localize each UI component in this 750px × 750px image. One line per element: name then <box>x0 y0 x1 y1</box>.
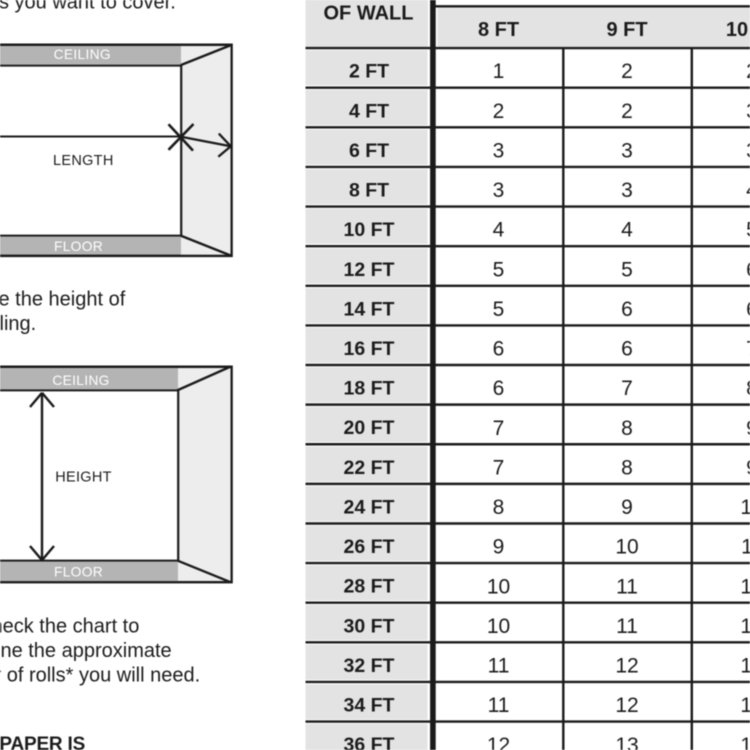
svg-text:11: 11 <box>741 536 750 559</box>
svg-text:2: 2 <box>621 100 633 123</box>
svg-text:10: 10 <box>740 496 750 519</box>
svg-text:5: 5 <box>493 258 505 281</box>
svg-text:12: 12 <box>615 655 638 678</box>
svg-text:24 FT: 24 FT <box>344 497 395 519</box>
svg-text:OF WALL: OF WALL <box>324 3 414 25</box>
svg-text:8: 8 <box>621 417 633 440</box>
svg-text:12: 12 <box>487 734 510 750</box>
svg-text:4 FT: 4 FT <box>349 100 389 122</box>
svg-text:13: 13 <box>740 655 750 678</box>
svg-text:13: 13 <box>615 734 638 750</box>
svg-text:11: 11 <box>488 694 510 717</box>
svg-text:9 FT: 9 FT <box>606 19 647 41</box>
svg-text:FLOOR: FLOOR <box>54 239 103 254</box>
svg-text:3: 3 <box>493 179 505 202</box>
svg-text:s you want to cover.: s you want to cover. <box>0 0 176 14</box>
svg-text:HEIGHT: HEIGHT <box>55 470 112 486</box>
svg-text:9: 9 <box>746 456 750 479</box>
svg-text:CEILING: CEILING <box>52 373 109 388</box>
svg-text:4: 4 <box>746 179 750 202</box>
svg-text:10: 10 <box>615 536 638 559</box>
svg-text:8 FT: 8 FT <box>349 180 389 202</box>
svg-text:FLOOR: FLOOR <box>54 564 103 579</box>
svg-text:6: 6 <box>746 258 750 281</box>
svg-text:10: 10 <box>487 615 510 638</box>
svg-text:6: 6 <box>493 377 505 400</box>
svg-text:3: 3 <box>746 100 750 123</box>
svg-text:11: 11 <box>616 615 638 638</box>
svg-text:36 FT: 36 FT <box>344 734 395 750</box>
svg-text:34 FT: 34 FT <box>344 695 395 717</box>
svg-text:6: 6 <box>621 338 633 361</box>
svg-text:3: 3 <box>621 179 633 202</box>
svg-text:6 FT: 6 FT <box>349 140 389 162</box>
svg-text:CEILING: CEILING <box>54 47 111 62</box>
svg-text:12: 12 <box>740 575 750 598</box>
svg-text:15: 15 <box>740 734 750 750</box>
svg-text:7: 7 <box>746 338 750 361</box>
svg-text:14: 14 <box>740 694 750 717</box>
svg-text:22 FT: 22 FT <box>344 457 395 479</box>
svg-text:7: 7 <box>493 456 505 479</box>
svg-text:20 FT: 20 FT <box>344 417 395 439</box>
svg-text:r of rolls* you will need.: r of rolls* you will need. <box>0 665 200 687</box>
svg-text:e the height of: e the height of <box>0 289 126 311</box>
svg-text:LPAPER IS: LPAPER IS <box>0 734 85 750</box>
svg-text:26 FT: 26 FT <box>344 536 395 558</box>
svg-text:6: 6 <box>621 298 633 321</box>
svg-text:11: 11 <box>488 655 510 678</box>
svg-text:18 FT: 18 FT <box>344 378 395 400</box>
svg-text:2: 2 <box>746 60 750 83</box>
svg-text:32 FT: 32 FT <box>344 655 395 677</box>
svg-text:2 FT: 2 FT <box>349 61 389 83</box>
svg-text:6: 6 <box>493 338 505 361</box>
svg-text:16 FT: 16 FT <box>344 338 395 360</box>
svg-text:5: 5 <box>493 298 505 321</box>
svg-text:8: 8 <box>493 496 505 519</box>
svg-text:4: 4 <box>621 219 633 242</box>
svg-text:heck the chart to: heck the chart to <box>0 616 139 638</box>
svg-text:30 FT: 30 FT <box>344 615 395 637</box>
svg-text:7: 7 <box>621 377 633 400</box>
svg-text:8: 8 <box>746 377 750 400</box>
svg-text:12: 12 <box>615 694 638 717</box>
svg-text:3: 3 <box>746 140 750 163</box>
svg-text:9: 9 <box>621 496 633 519</box>
svg-text:ine the approximate: ine the approximate <box>0 640 172 662</box>
svg-text:12 FT: 12 FT <box>344 259 395 281</box>
svg-text:10: 10 <box>487 575 510 598</box>
svg-text:5: 5 <box>621 258 633 281</box>
svg-text:12: 12 <box>740 615 750 638</box>
svg-text:1: 1 <box>493 60 505 83</box>
svg-text:6: 6 <box>746 298 750 321</box>
svg-text:14 FT: 14 FT <box>344 298 395 320</box>
svg-text:9: 9 <box>746 417 750 440</box>
svg-text:5: 5 <box>746 219 750 242</box>
svg-text:8: 8 <box>621 456 633 479</box>
svg-text:3: 3 <box>621 140 633 163</box>
svg-text:2: 2 <box>493 100 505 123</box>
svg-text:7: 7 <box>493 417 505 440</box>
svg-text:4: 4 <box>493 219 505 242</box>
svg-text:ling.: ling. <box>0 313 36 335</box>
svg-text:9: 9 <box>493 536 505 559</box>
svg-text:8 FT: 8 FT <box>478 19 519 41</box>
svg-text:2: 2 <box>621 60 633 83</box>
svg-text:LENGTH: LENGTH <box>53 153 114 169</box>
svg-text:10 FT: 10 FT <box>344 219 395 241</box>
svg-text:3: 3 <box>493 140 505 163</box>
svg-text:10 FT: 10 FT <box>726 19 750 41</box>
svg-text:28 FT: 28 FT <box>344 576 395 598</box>
svg-text:11: 11 <box>616 575 638 598</box>
